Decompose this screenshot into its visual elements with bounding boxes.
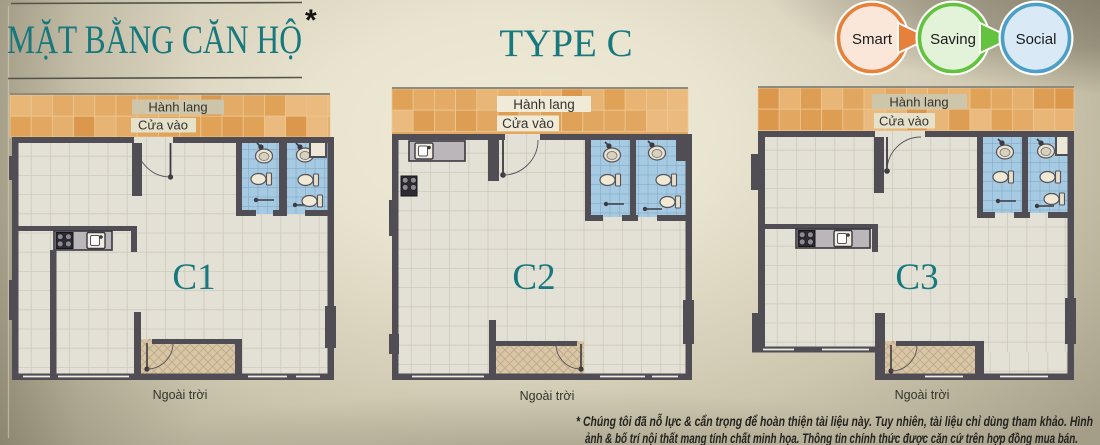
svg-text:C2: C2 — [512, 257, 555, 298]
svg-text:Saving: Saving — [930, 31, 976, 48]
svg-text:Social: Social — [1016, 31, 1057, 48]
svg-text:Hành lang: Hành lang — [889, 95, 948, 110]
svg-text:Cửa vào: Cửa vào — [138, 118, 188, 133]
svg-text:Hành lang: Hành lang — [148, 100, 207, 115]
svg-text:* Chúng tôi đã nỗ lực & cẩn tr: * Chúng tôi đã nỗ lực & cẩn trọng để hoà… — [576, 414, 1093, 429]
svg-text:Smart: Smart — [852, 31, 893, 48]
svg-text:Cửa vào: Cửa vào — [879, 114, 929, 129]
svg-text:C1: C1 — [172, 257, 215, 298]
svg-text:TYPE C: TYPE C — [499, 22, 632, 65]
svg-text:ảnh & bố trí nội thất mang tín: ảnh & bố trí nội thất mang tính chất min… — [585, 431, 1078, 445]
svg-text:MẶT BẰNG CĂN HỘ: MẶT BẰNG CĂN HỘ — [7, 17, 302, 62]
svg-text:Ngoài trời: Ngoài trời — [153, 388, 208, 402]
svg-text:C3: C3 — [895, 257, 938, 298]
svg-text:*: * — [305, 4, 317, 37]
svg-text:Cửa vào: Cửa vào — [502, 116, 554, 131]
svg-text:Ngoài trời: Ngoài trời — [520, 389, 575, 403]
svg-text:Hành lang: Hành lang — [513, 97, 575, 112]
svg-text:Ngoài trời: Ngoài trời — [895, 388, 950, 402]
